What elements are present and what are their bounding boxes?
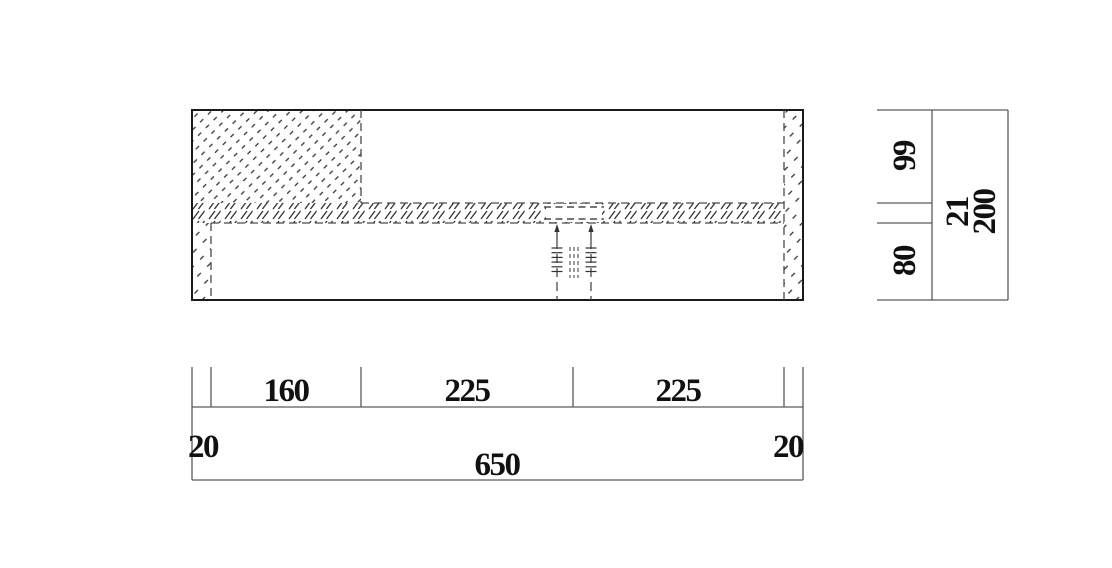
right-wall-hatch [784, 110, 803, 300]
dim-label-200: 200 [967, 189, 1003, 235]
dim-label-160: 160 [264, 373, 310, 409]
dim-label-225-b: 225 [656, 373, 702, 409]
drain-thread-ticks [552, 248, 597, 272]
dim-label-99: 99 [887, 140, 923, 171]
left-wall-hatch [192, 223, 211, 300]
dim-label-650: 650 [475, 447, 521, 483]
dim-label-20-right: 20 [773, 429, 804, 465]
drain-arrow-head-right [588, 224, 593, 232]
cross-section-drawing: 99 80 21 200 160 225 225 20 20 650 [0, 0, 1112, 568]
drain-arrow-head-left [554, 224, 559, 232]
bottom-dimension-chain: 160 225 225 20 20 650 [188, 367, 804, 483]
dim-label-20-left: 20 [188, 429, 219, 465]
side-dimension-chain: 99 80 21 200 [877, 110, 1008, 300]
dim-label-225-a: 225 [445, 373, 491, 409]
drain-centerline [570, 247, 578, 278]
solid-block-hatch [192, 110, 361, 203]
main-section-view [192, 110, 803, 300]
technical-drawing-canvas: 99 80 21 200 160 225 225 20 20 650 [0, 0, 1112, 568]
slab-hatch [192, 203, 784, 223]
dim-label-80: 80 [887, 245, 923, 276]
